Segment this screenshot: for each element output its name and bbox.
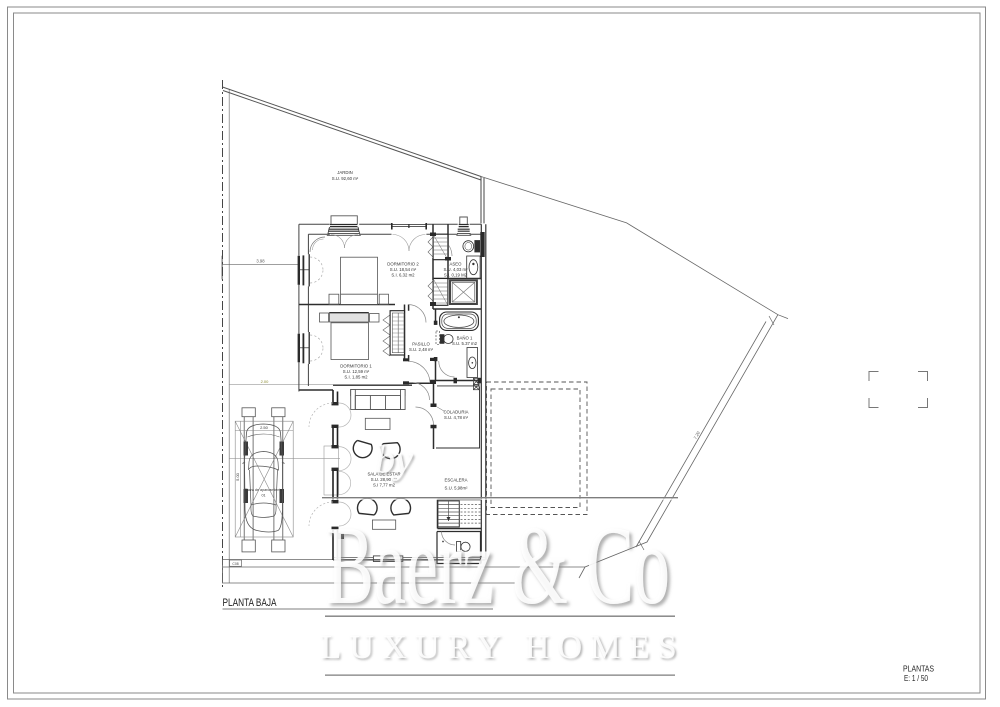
svg-text:Plaza de aparcamiento: Plaza de aparcamiento [245,488,283,492]
svg-text:BAÑO 1: BAÑO 1 [457,336,473,341]
svg-text:5.00: 5.00 [235,472,240,481]
svg-text:E: 1 / 50: E: 1 / 50 [904,673,928,683]
svg-text:S.U. 2,48 m²: S.U. 2,48 m² [409,347,434,352]
svg-text:JARDIN: JARDIN [337,170,353,175]
svg-text:COLADURIA: COLADURIA [443,410,468,415]
svg-text:7.20: 7.20 [692,430,701,440]
svg-text:S.U. 12,59 m²: S.U. 12,59 m² [343,369,370,374]
svg-text:ESCALERA: ESCALERA [445,478,468,483]
svg-text:S.U. 5,98m²: S.U. 5,98m² [445,486,468,491]
svg-text:LUXURY HOMES: LUXURY HOMES [321,629,685,666]
svg-text:PASILLO: PASILLO [412,342,430,347]
svg-text:PLANTA BAJA: PLANTA BAJA [223,597,278,609]
svg-text:S.U. 18,54 m²: S.U. 18,54 m² [390,267,417,272]
svg-text:S.I 7,77 m2: S.I 7,77 m2 [373,483,396,488]
svg-text:DORMITORIO 2: DORMITORIO 2 [387,262,419,267]
svg-text:S.I. 1,85 m2: S.I. 1,85 m2 [344,375,368,380]
svg-text:3.98: 3.98 [256,259,265,264]
svg-text:S.U. 4,78 m²: S.U. 4,78 m² [444,415,469,420]
svg-text:PLANTAS: PLANTAS [903,664,934,674]
svg-text:S.I. 6,32 m2: S.I. 6,32 m2 [391,273,415,278]
svg-text:DORMITORIO 1: DORMITORIO 1 [340,364,372,369]
svg-text:ASEO: ASEO [450,262,463,267]
svg-text:S.I. 0,19 M2: S.I. 0,19 M2 [444,273,468,278]
svg-text:2.00: 2.00 [261,379,270,384]
svg-text:01: 01 [261,494,265,498]
svg-text:2.50: 2.50 [260,425,269,430]
svg-text:C08: C08 [232,562,238,566]
svg-text:by: by [375,437,413,482]
svg-text:Baerz & Co: Baerz & Co [326,504,670,628]
svg-text:S.U. 5.37 m2: S.U. 5.37 m2 [452,341,478,346]
svg-text:S.U. 4,03 m²: S.U. 4,03 m² [443,267,468,272]
svg-text:S.U. 92,60 m²: S.U. 92,60 m² [332,176,359,181]
